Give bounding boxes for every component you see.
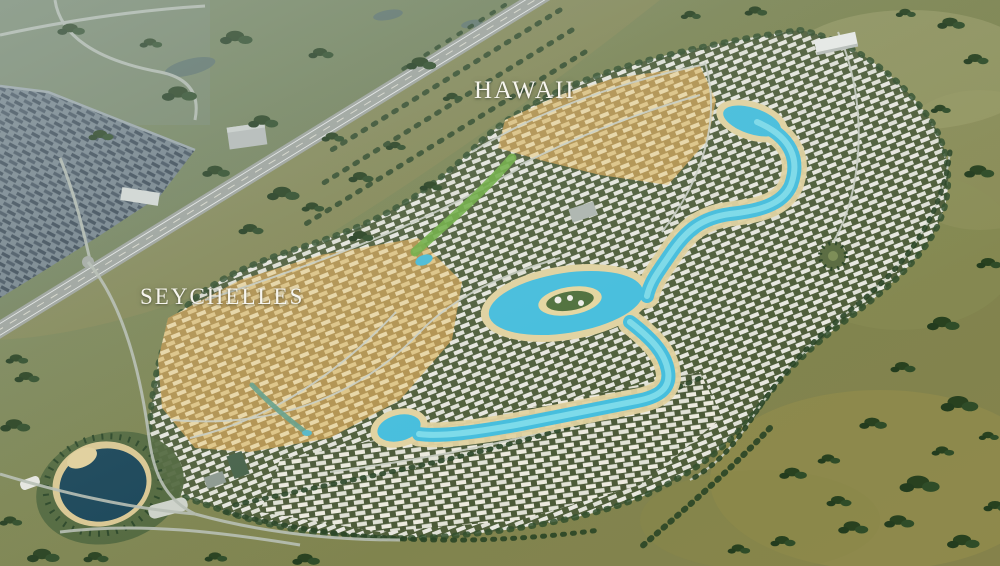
- hawaii-district-label: HAWAII: [474, 78, 576, 103]
- seychelles-district-label: SEYCHELLES: [140, 285, 304, 308]
- masterplan-render: HAWAII SEYCHELLES: [0, 0, 1000, 566]
